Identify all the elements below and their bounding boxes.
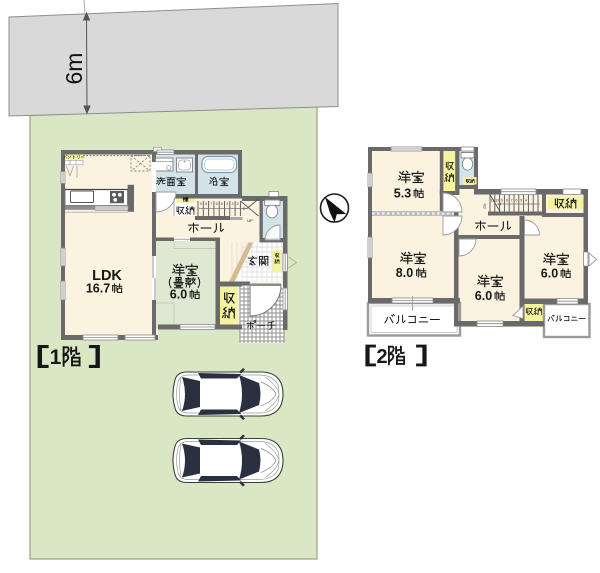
svg-text:9: 9: [501, 199, 503, 203]
svg-text:3: 3: [232, 202, 234, 206]
svg-text:6.0: 6.0: [475, 289, 492, 303]
svg-text:10: 10: [495, 199, 499, 203]
svg-text:6: 6: [515, 199, 517, 203]
svg-text:9: 9: [200, 202, 202, 206]
svg-text:5: 5: [520, 199, 522, 203]
svg-text:5: 5: [221, 202, 223, 206]
svg-text:UP: UP: [247, 218, 253, 223]
svg-text:8: 8: [205, 202, 207, 206]
svg-text:7: 7: [511, 199, 513, 203]
svg-text:1: 1: [50, 346, 62, 369]
svg-text:5.3: 5.3: [394, 187, 411, 201]
svg-text:6: 6: [216, 202, 218, 206]
svg-text:11: 11: [491, 199, 495, 203]
svg-text:8: 8: [506, 199, 508, 203]
svg-text:8.0: 8.0: [396, 266, 413, 280]
svg-text:6.0: 6.0: [170, 288, 187, 302]
svg-text:4: 4: [525, 199, 527, 203]
svg-text:6m: 6m: [61, 53, 87, 85]
svg-text:7: 7: [210, 202, 212, 206]
svg-text:2: 2: [237, 202, 239, 206]
svg-text:4: 4: [226, 202, 228, 206]
svg-text:DN: DN: [483, 203, 487, 208]
svg-text:2: 2: [376, 346, 387, 368]
svg-text:6.0: 6.0: [541, 267, 558, 281]
svg-text:16.7: 16.7: [86, 282, 110, 296]
